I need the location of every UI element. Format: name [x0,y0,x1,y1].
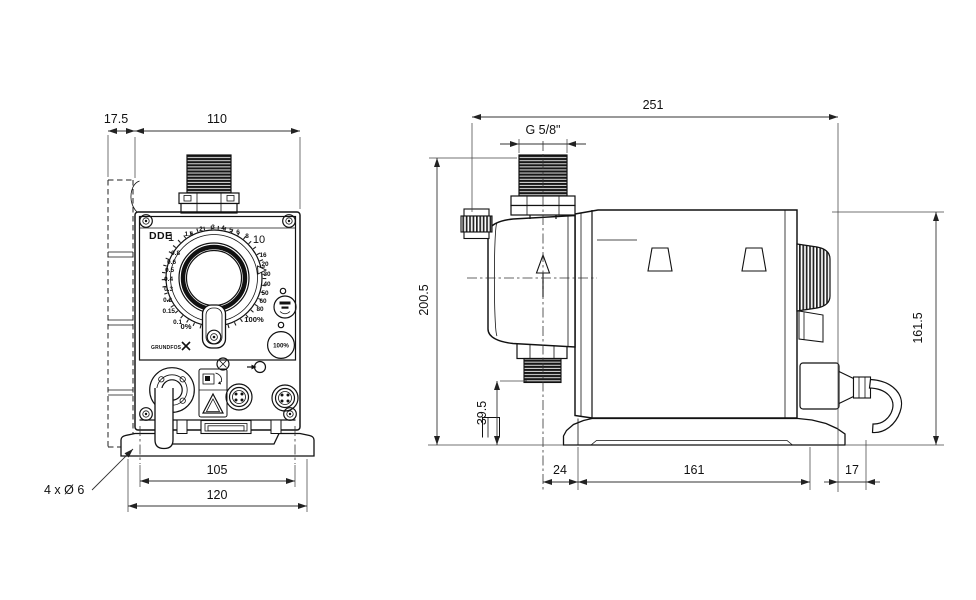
dosing-head [461,155,575,347]
dial-scale-label: 20 [261,261,269,268]
led-indicator-icon [278,322,283,327]
dial-knob [179,243,249,313]
dial-scale-label: 80 [256,306,264,313]
dial-scale-label: 5 [229,227,233,234]
dial-scale-label: 6 [236,229,240,236]
dim-slot-spacing: 105 [207,463,228,477]
dim-housing-height: 161.5 [911,312,925,343]
base-front [121,420,314,464]
dial-scale-label: 0.3 [164,286,173,293]
housing-vent-icon [742,248,766,271]
dial-scale-label: 0.4 [164,276,173,283]
model-label: DDE [149,230,172,242]
warning-label-plate [199,369,227,417]
prime-button: 100% [268,332,295,359]
dial-scale-major: 10 [253,234,265,246]
stroke-mode-icon [274,296,296,318]
prime-button-label: 100% [273,343,289,350]
dim-base-width: 120 [207,488,228,502]
dial-scale-label: 40 [263,281,271,288]
front-view: 1 10 0.8 0.6 0.5 0.4 0.3 0.2 0.15 0.1 1.… [44,112,314,512]
mounting-holes-label: 4 x Ø 6 [44,483,84,497]
dim-overall-height: 200.5 [417,284,431,315]
power-cable-front [155,388,173,449]
housing-vent-icon [648,248,672,271]
dial-scale-label: 16 [259,252,267,259]
m12-connector-icon [226,384,252,410]
brand-wordmark: GRUNDFOS [151,345,182,351]
dial-zero-label: 0% [181,322,192,331]
dial-full-label: 100% [244,315,264,324]
motor-housing [575,210,797,418]
panel-controls: 100% [268,288,296,358]
dial-scale-label: 8 [245,233,249,240]
tube-clamp [201,421,251,434]
suction-fitting [517,342,567,383]
dim-valve-clearance: 39.5 [475,401,489,425]
grundfos-logo: GRUNDFOS [151,342,190,351]
dosing-pump-dimension-drawing: 1 10 0.8 0.6 0.5 0.4 0.3 0.2 0.15 0.1 1.… [0,0,976,600]
dim-plate-offset: 17.5 [104,112,128,126]
dial-scale-label: 0.2 [163,297,172,304]
vent-valve-knob [461,209,492,239]
m12-connector-icon [272,385,298,411]
rear-adjustment-wheel [797,244,830,342]
dim-cable-gland: 17 [845,463,859,477]
inlet-fitting-front [179,155,239,213]
side-view: 251 G 5/8" 200.5 161.5 39.5 24 16 [417,98,944,492]
dim-head-to-base: 24 [553,463,567,477]
dial-scale-label: 1.6 [185,231,194,238]
dial-scale-label: 0.6 [167,259,176,266]
dial-scale-label: 0.15 [163,308,176,315]
dial-scale-label: 50 [261,290,269,297]
screw-icon [140,408,153,421]
power-connection-icon [247,362,266,373]
dial-scale-label: 0.8 [171,250,180,257]
dim-body-width: 110 [207,112,227,126]
dial-scale-label: 2 [199,226,203,233]
control-dial: 1 10 0.8 0.6 0.5 0.4 0.3 0.2 0.15 0.1 1.… [163,224,271,348]
dim-overall-depth: 251 [643,98,664,112]
dial-scale-label: 30 [263,271,271,278]
technical-drawing-page: 1 10 0.8 0.6 0.5 0.4 0.3 0.2 0.15 0.1 1.… [0,0,976,600]
dial-scale-label: 60 [259,298,267,305]
dial-scale-label: 0.5 [165,267,174,274]
dial-scale-label: 4 [221,225,225,232]
dial-handle [203,305,226,348]
power-cable-side [870,380,902,433]
dim-base-length: 161 [684,463,705,477]
base-side [483,418,846,446]
led-indicator-icon [280,288,285,293]
dim-connection-thread: G 5/8" [525,123,560,137]
dial-scale-label: 3 [211,224,215,231]
